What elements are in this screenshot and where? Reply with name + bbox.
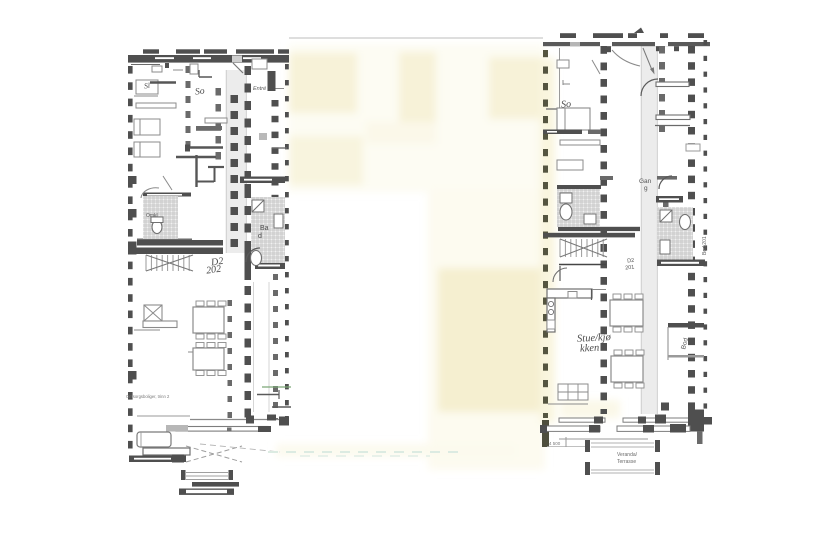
svg-text:g: g	[644, 185, 648, 192]
svg-text:So: So	[195, 86, 206, 97]
svg-text:201: 201	[625, 265, 635, 272]
svg-text:Terrasse: Terrasse	[617, 459, 636, 465]
svg-text:D2: D2	[627, 258, 635, 265]
svg-text:Omsorgsboliger, trinn 2: Omsorgsboliger, trinn 2	[126, 394, 170, 399]
svg-text:Sl: Sl	[144, 81, 151, 91]
svg-text:Veranda/: Veranda/	[617, 452, 638, 458]
svg-text:d: d	[258, 233, 262, 240]
svg-text:Ba: Ba	[260, 225, 269, 232]
svg-text:202: 202	[205, 264, 221, 277]
svg-text:Gan: Gan	[639, 178, 652, 185]
svg-text:Entré: Entré	[253, 86, 266, 92]
svg-text:kken: kken	[580, 343, 600, 355]
svg-text:4 500: 4 500	[549, 441, 561, 446]
svg-text:So: So	[561, 99, 572, 111]
svg-text:Bod 201: Bod 201	[702, 236, 708, 255]
svg-text:Omkl: Omkl	[146, 213, 158, 219]
